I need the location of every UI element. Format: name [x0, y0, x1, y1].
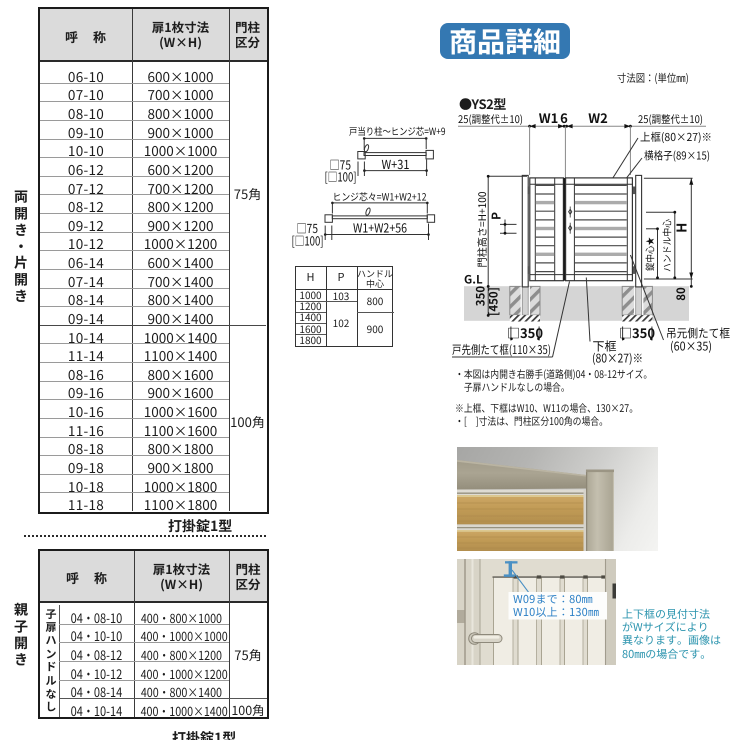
svg-text:門柱高さ=H+100: 門柱高さ=H+100 [475, 191, 490, 267]
svg-text:□350: □350 [507, 323, 543, 342]
svg-text:(60×35): (60×35) [670, 338, 712, 355]
svg-text:戸当り柱～ヒンジ芯=W+9: 戸当り柱～ヒンジ芯=W+9 [349, 123, 446, 138]
svg-text:W1+W2+56: W1+W2+56 [353, 217, 407, 236]
svg-text:ハンドル中心: ハンドル中心 [660, 219, 674, 272]
svg-text:戸先側たて框(110×35): 戸先側たて框(110×35) [452, 341, 551, 358]
svg-text:6: 6 [560, 108, 568, 127]
svg-text:横格子(89×15): 横格子(89×15) [644, 148, 710, 164]
svg-text:[□100]: [□100] [325, 167, 357, 186]
svg-text:錠中心★: 錠中心★ [643, 237, 657, 271]
svg-text:□350: □350 [619, 323, 655, 342]
svg-text:W2: W2 [588, 108, 608, 127]
svg-text:ヒンジ芯々=W1+W2+12: ヒンジ芯々=W1+W2+12 [333, 188, 427, 203]
svg-text:25(調整代±10): 25(調整代±10) [458, 112, 523, 127]
svg-text:G.L: G.L [464, 272, 483, 288]
svg-text:80: 80 [673, 287, 689, 301]
svg-text:[□100]: [□100] [292, 230, 324, 249]
svg-text:25(調整代±10): 25(調整代±10) [638, 112, 703, 127]
svg-text:W1: W1 [539, 108, 559, 127]
svg-text:上框(80×27)※: 上框(80×27)※ [640, 129, 712, 145]
svg-text:(80×27)※: (80×27)※ [592, 350, 643, 367]
svg-text:W+31: W+31 [382, 154, 410, 173]
svg-text:P: P [488, 212, 505, 220]
svg-text:[450]: [450] [486, 287, 502, 316]
svg-text:H: H [671, 223, 691, 233]
